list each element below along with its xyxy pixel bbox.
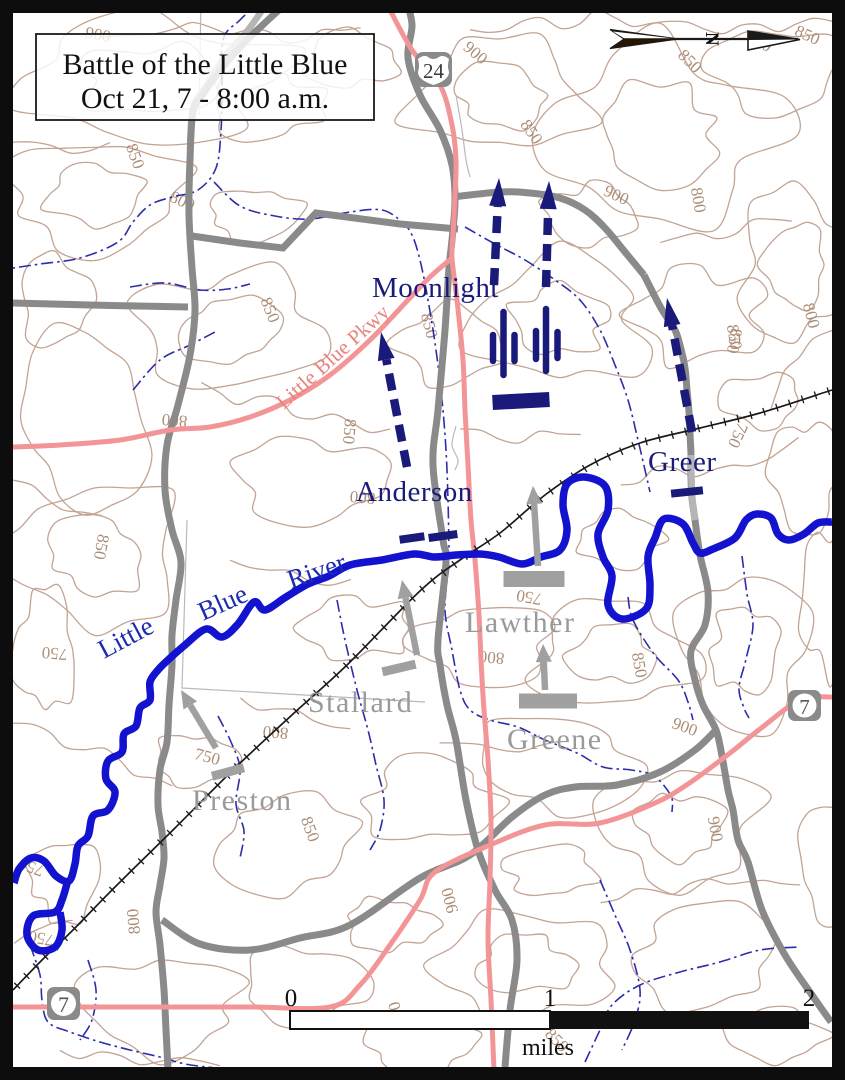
svg-text:1: 1 — [544, 985, 557, 1012]
svg-text:Moonlight: Moonlight — [372, 272, 499, 304]
svg-text:N: N — [701, 32, 722, 46]
svg-text:Lawther: Lawther — [465, 606, 575, 639]
svg-text:850: 850 — [339, 418, 360, 445]
svg-text:Anderson: Anderson — [356, 476, 473, 508]
svg-text:800: 800 — [123, 908, 144, 935]
svg-text:0: 0 — [285, 985, 298, 1012]
svg-text:2: 2 — [803, 985, 816, 1012]
svg-text:Stallard: Stallard — [308, 686, 413, 719]
svg-text:7: 7 — [799, 695, 810, 719]
svg-text:Greer: Greer — [648, 446, 717, 478]
svg-text:Oct 21, 7 - 8:00 a.m.: Oct 21, 7 - 8:00 a.m. — [81, 82, 329, 115]
svg-text:7: 7 — [58, 992, 69, 1017]
svg-text:Preston: Preston — [192, 784, 293, 817]
svg-text:miles: miles — [522, 1035, 574, 1061]
svg-text:Battle of the Little Blue: Battle of the Little Blue — [63, 48, 348, 81]
svg-text:24: 24 — [423, 59, 445, 83]
svg-text:Greene: Greene — [507, 723, 603, 756]
svg-text:750: 750 — [41, 643, 68, 664]
